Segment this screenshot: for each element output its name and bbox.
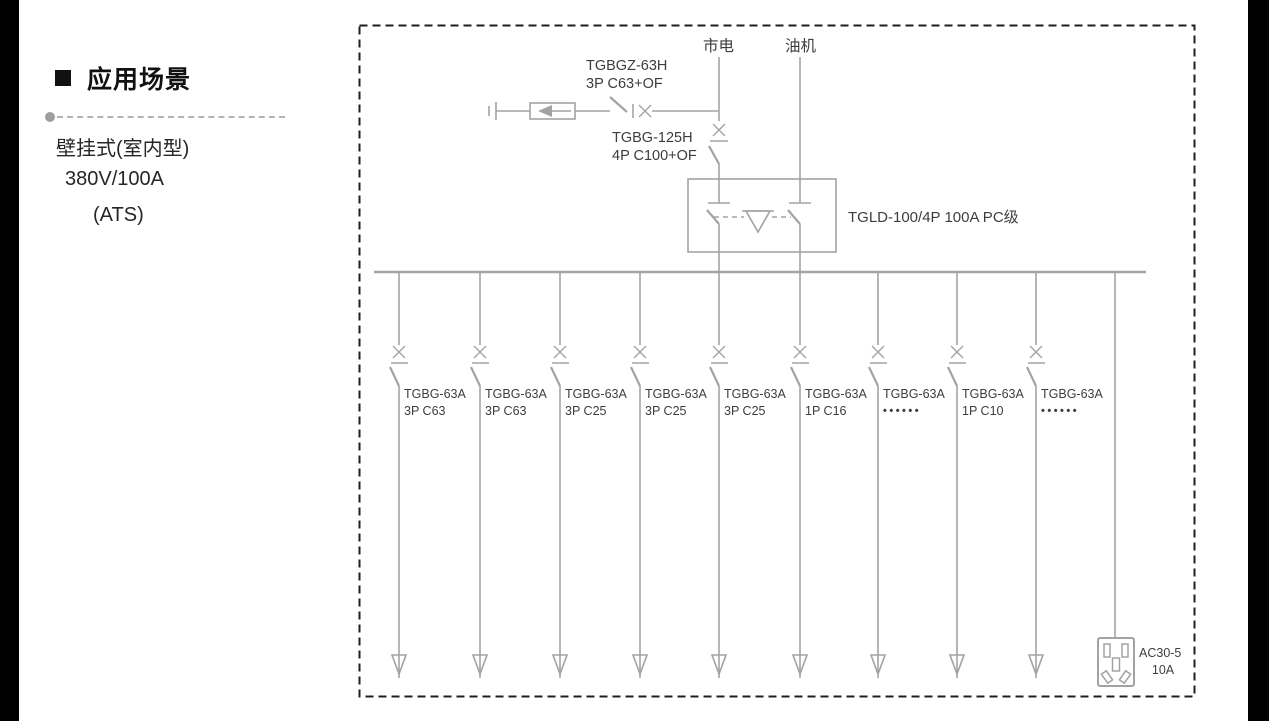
right-black-bar xyxy=(1248,0,1269,721)
branch-feeder xyxy=(471,273,489,678)
mains-line xyxy=(709,57,728,203)
branch-spec: •••••• xyxy=(1041,403,1103,420)
branch-model: TGBG-63A xyxy=(565,386,627,403)
branch-feeder xyxy=(390,273,408,678)
branch-label: TGBG-63A •••••• xyxy=(883,386,945,420)
socket-rating: 10A xyxy=(1139,662,1187,679)
branch-spec: 1P C10 xyxy=(962,403,1024,420)
branch-label: TGBG-63A 1P C10 xyxy=(962,386,1024,420)
socket-model: AC30-5 xyxy=(1139,645,1187,662)
branch-label: TGBG-63A 3P C63 xyxy=(404,386,466,420)
branch-label: TGBG-63A 3P C25 xyxy=(645,386,707,420)
ats-box xyxy=(688,179,836,252)
main-breaker-model: TGBG-125H xyxy=(612,129,697,147)
branch-model: TGBG-63A xyxy=(805,386,867,403)
branch-feeder xyxy=(551,273,569,678)
branch-model: TGBG-63A xyxy=(724,386,786,403)
branch-spec: 3P C25 xyxy=(645,403,707,420)
spd-breaker-label: TGBGZ-63H 3P C63+OF xyxy=(586,57,667,93)
branch-spec: 3P C25 xyxy=(724,403,786,420)
ats-switch xyxy=(688,179,836,273)
diagram-dashed-border xyxy=(360,26,1195,697)
branch-feeder xyxy=(710,273,728,678)
divider-dot-icon xyxy=(45,112,55,122)
branch-model: TGBG-63A xyxy=(962,386,1024,403)
branch-label: TGBG-63A 3P C63 xyxy=(485,386,547,420)
branch-model: TGBG-63A xyxy=(1041,386,1103,403)
ats-label: TGLD-100/4P 100A PC级 xyxy=(848,206,1019,227)
socket-feeder xyxy=(1098,273,1134,686)
branch-spec: 3P C63 xyxy=(485,403,547,420)
branch-feeder xyxy=(1027,273,1045,678)
divider-dashed-line xyxy=(57,116,285,118)
spd-breaker-spec: 3P C63+OF xyxy=(586,75,667,93)
square-bullet-icon xyxy=(55,70,71,86)
page-title-text: 应用场景 xyxy=(87,60,191,96)
main-breaker-spec: 4P C100+OF xyxy=(612,147,697,165)
branch-feeder xyxy=(869,273,887,678)
branch-model: TGBG-63A xyxy=(883,386,945,403)
branch-spec: •••••• xyxy=(883,403,945,420)
spd-branch xyxy=(489,97,719,120)
spd-breaker-model: TGBGZ-63H xyxy=(586,57,667,75)
generator-label: 油机 xyxy=(785,34,816,56)
branch-model: TGBG-63A xyxy=(404,386,466,403)
page-title: 应用场景 xyxy=(55,60,191,96)
title-divider xyxy=(45,112,285,122)
mount-type-text: 壁挂式(室内型) xyxy=(56,132,189,161)
branch-feeder xyxy=(631,273,649,678)
branch-label: TGBG-63A •••••• xyxy=(1041,386,1103,420)
left-black-bar xyxy=(0,0,19,721)
spd-arrow-icon xyxy=(538,105,552,117)
branch-feeder xyxy=(791,273,809,678)
circuit-diagram xyxy=(358,24,1196,698)
branch-spec: 3P C25 xyxy=(565,403,627,420)
ground-icon xyxy=(489,102,496,120)
socket-icon xyxy=(1098,638,1134,686)
branch-spec: 1P C16 xyxy=(805,403,867,420)
branch-label: TGBG-63A 3P C25 xyxy=(565,386,627,420)
socket-label: AC30-5 10A xyxy=(1139,645,1187,679)
branch-model: TGBG-63A xyxy=(645,386,707,403)
main-breaker-label: TGBG-125H 4P C100+OF xyxy=(612,129,697,165)
branch-label: TGBG-63A 3P C25 xyxy=(724,386,786,420)
branch-spec: 3P C63 xyxy=(404,403,466,420)
branch-model: TGBG-63A xyxy=(485,386,547,403)
ats-text: (ATS) xyxy=(93,204,144,227)
branch-label: TGBG-63A 1P C16 xyxy=(805,386,867,420)
branch-feeder xyxy=(948,273,966,678)
rating-text: 380V/100A xyxy=(65,168,164,191)
mains-label: 市电 xyxy=(703,34,734,56)
